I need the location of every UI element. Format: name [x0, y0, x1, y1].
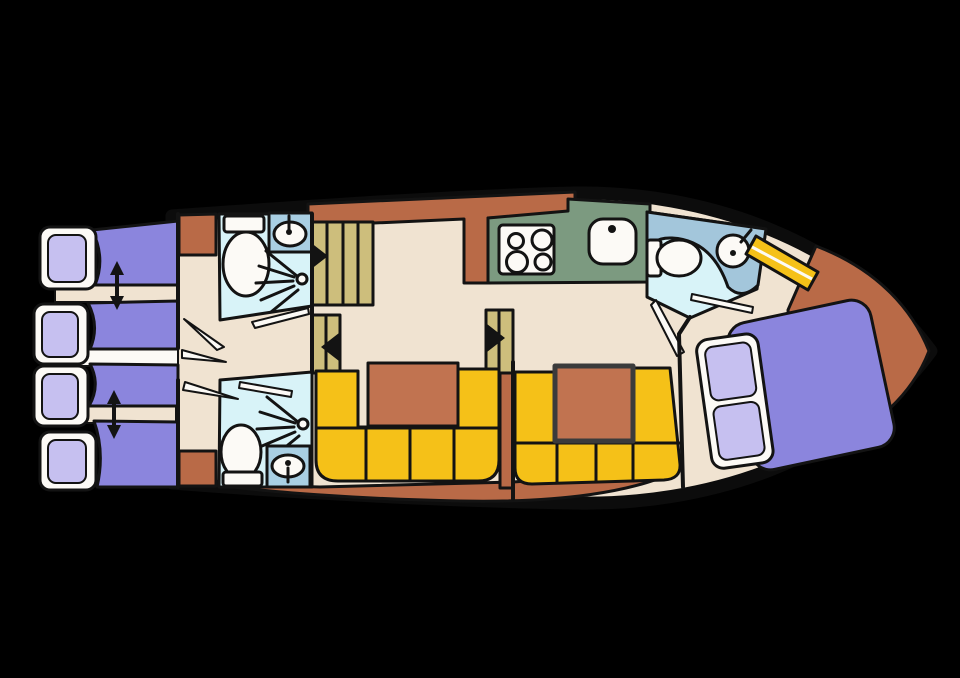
mid-steps-right: [486, 310, 513, 373]
pillow: [48, 440, 86, 483]
galley-sink-drain: [608, 225, 616, 233]
berth-4: [94, 421, 178, 487]
stove-burner: [507, 252, 528, 273]
pillow: [42, 374, 78, 419]
pillow: [704, 342, 757, 402]
stove-burner: [532, 230, 552, 250]
mid-steps-left: [312, 315, 340, 373]
boat-floor-plan: [0, 0, 960, 678]
deck-stern-block-top: [179, 214, 216, 255]
pillow: [48, 235, 86, 282]
washbasin-drain: [285, 460, 291, 466]
washbasin-drain: [730, 250, 736, 256]
pillow: [42, 312, 78, 357]
floor-plan-canvas: [0, 0, 960, 678]
table-left: [368, 363, 458, 426]
main-companionway-stairs: [310, 222, 373, 305]
toilet-bowl: [657, 240, 701, 276]
dinette-left: [316, 363, 499, 481]
toilet-bowl: [223, 232, 269, 296]
deck-stern-block-bottom: [179, 451, 216, 486]
berth-1: [92, 221, 178, 285]
berth-2: [88, 301, 178, 349]
dinette-right: [515, 366, 680, 484]
aft-bathroom-top: [219, 213, 312, 320]
stove-burner: [509, 234, 524, 249]
table-right: [555, 366, 633, 441]
aft-cabin: [34, 221, 178, 490]
berth-3: [89, 364, 178, 406]
pillow: [713, 401, 766, 461]
stove-burner: [535, 254, 551, 270]
toilet-tank: [223, 472, 262, 486]
toilet-tank: [224, 216, 264, 232]
